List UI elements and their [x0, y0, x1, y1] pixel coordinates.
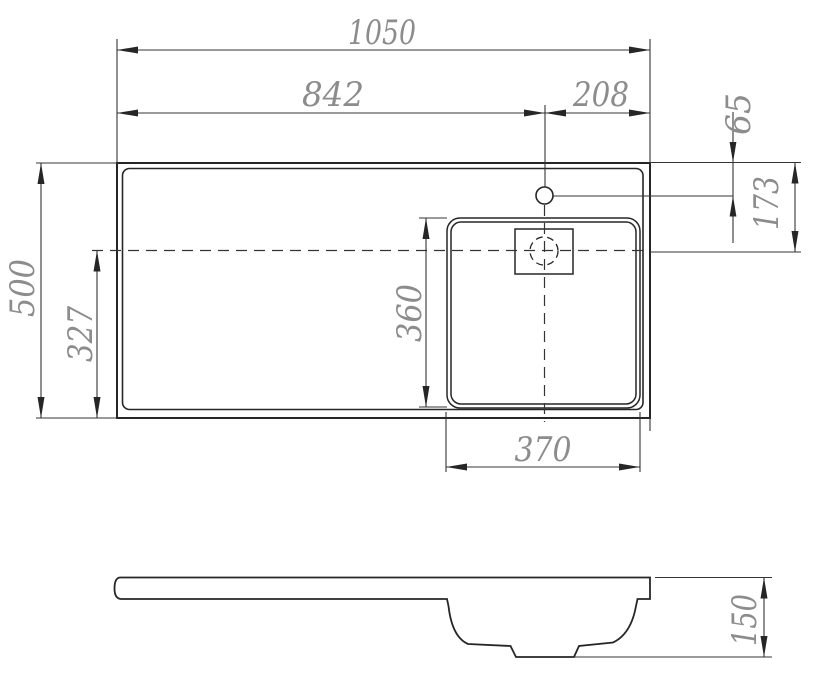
- dim-overall-height: 150: [725, 578, 765, 658]
- dim-value-150: 150: [725, 594, 765, 646]
- arrowhead-down: [730, 142, 737, 163]
- arrowhead-up: [730, 196, 737, 217]
- top-view: 1050 842 208 500 327 360 3: [3, 13, 801, 472]
- dim-bowl-depth: 360: [390, 218, 430, 407]
- drawing-canvas: 1050 842 208 500 327 360 3: [0, 0, 813, 673]
- dim-left-to-faucet: 842: [117, 75, 545, 115]
- dim-overall-depth: 500: [3, 163, 43, 418]
- dim-faucet-to-right: 208: [545, 75, 650, 115]
- dim-value-173: 173: [747, 176, 787, 230]
- dim-value-370: 370: [515, 430, 572, 470]
- dim-value-208: 208: [572, 75, 629, 115]
- dim-overall-width: 1050: [117, 13, 650, 53]
- extension-lines: [36, 39, 801, 472]
- dim-value-500: 500: [3, 259, 43, 317]
- bowl-inner-rim: [451, 222, 636, 404]
- countertop-profile-outline: [115, 578, 651, 658]
- side-view: 150: [115, 578, 773, 658]
- dim-value-327: 327: [61, 306, 101, 362]
- dim-edge-to-bowl-center: 173: [747, 163, 795, 253]
- dim-bowl-width: 370: [446, 430, 640, 470]
- dim-value-65: 65: [719, 93, 759, 135]
- washbasin-technical-drawing: 1050 842 208 500 327 360 3: [0, 0, 813, 673]
- bowl-outer-rim: [447, 218, 640, 408]
- dim-value-842: 842: [302, 75, 364, 115]
- dim-bowl-center-to-bottom: 327: [61, 251, 101, 419]
- countertop-inner-edge: [123, 169, 644, 410]
- faucet-hole: [536, 187, 553, 204]
- countertop-outer-edge: [117, 163, 650, 418]
- dim-value-1050: 1050: [348, 13, 416, 53]
- dim-value-360: 360: [390, 284, 430, 342]
